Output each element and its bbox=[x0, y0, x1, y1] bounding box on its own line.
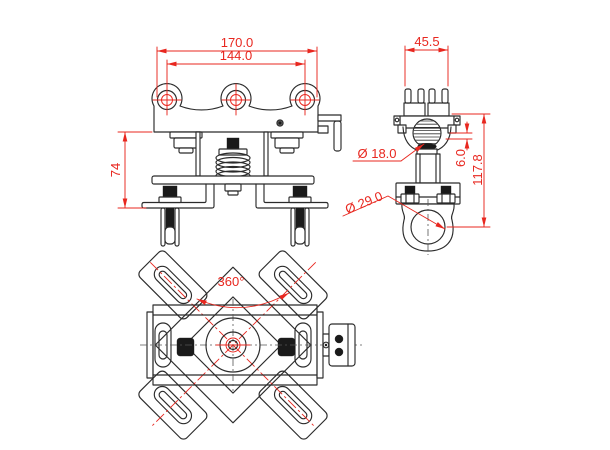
hanger-pin-right bbox=[289, 186, 311, 246]
hanger-bracket-right bbox=[256, 184, 328, 208]
technical-drawing-canvas: 170.0 144.0 74 bbox=[0, 0, 610, 450]
cross-bar-nut bbox=[225, 184, 241, 195]
dim-rotation-label: 360° bbox=[218, 274, 245, 289]
mount-hole-top bbox=[335, 335, 343, 343]
pivot-plate bbox=[400, 116, 454, 128]
tube-clamp bbox=[402, 199, 454, 255]
axle-nut-right bbox=[278, 338, 295, 356]
side-wheel-left bbox=[404, 89, 425, 116]
dim-clamp-bore-label: Ø 29.0 bbox=[343, 188, 385, 217]
hanger-pin-left bbox=[159, 186, 181, 246]
side-wheel-right bbox=[428, 89, 449, 116]
hanger-plate-right bbox=[264, 132, 268, 176]
plan-view bbox=[67, 179, 399, 450]
drawing-sheet: 170.0 144.0 74 bbox=[0, 0, 610, 450]
cross-bar bbox=[152, 176, 314, 184]
dim-pivot-offset-label: 6.0 bbox=[453, 149, 468, 167]
latch-step bbox=[318, 126, 328, 133]
plan-dimensions: 360° bbox=[197, 274, 289, 308]
side-mount-block bbox=[323, 324, 355, 366]
spring-bolt-head bbox=[227, 138, 239, 149]
dim-ball-diameter-label: Ø 18.0 bbox=[357, 146, 396, 161]
support-column bbox=[416, 154, 440, 183]
mount-hole-bottom bbox=[335, 348, 343, 356]
dim-overall-height-label: 117.8 bbox=[470, 154, 485, 186]
front-view bbox=[142, 84, 341, 246]
side-latch-hook bbox=[318, 115, 341, 151]
hanger-plate-left bbox=[196, 132, 200, 176]
dim-side-width-label: 45.5 bbox=[414, 34, 439, 49]
dim-wheel-spacing-label: 144.0 bbox=[220, 48, 253, 63]
latch-bar bbox=[318, 115, 341, 121]
suspension-spring bbox=[216, 138, 250, 181]
latch-pin bbox=[334, 121, 341, 151]
grease-fitting bbox=[277, 120, 283, 126]
dim-bracket-height-label: 74 bbox=[108, 163, 123, 177]
side-view bbox=[394, 89, 460, 255]
axle-nut-left bbox=[177, 338, 194, 356]
body-bolt-right bbox=[271, 132, 303, 153]
hanger-bracket-left bbox=[142, 184, 214, 208]
